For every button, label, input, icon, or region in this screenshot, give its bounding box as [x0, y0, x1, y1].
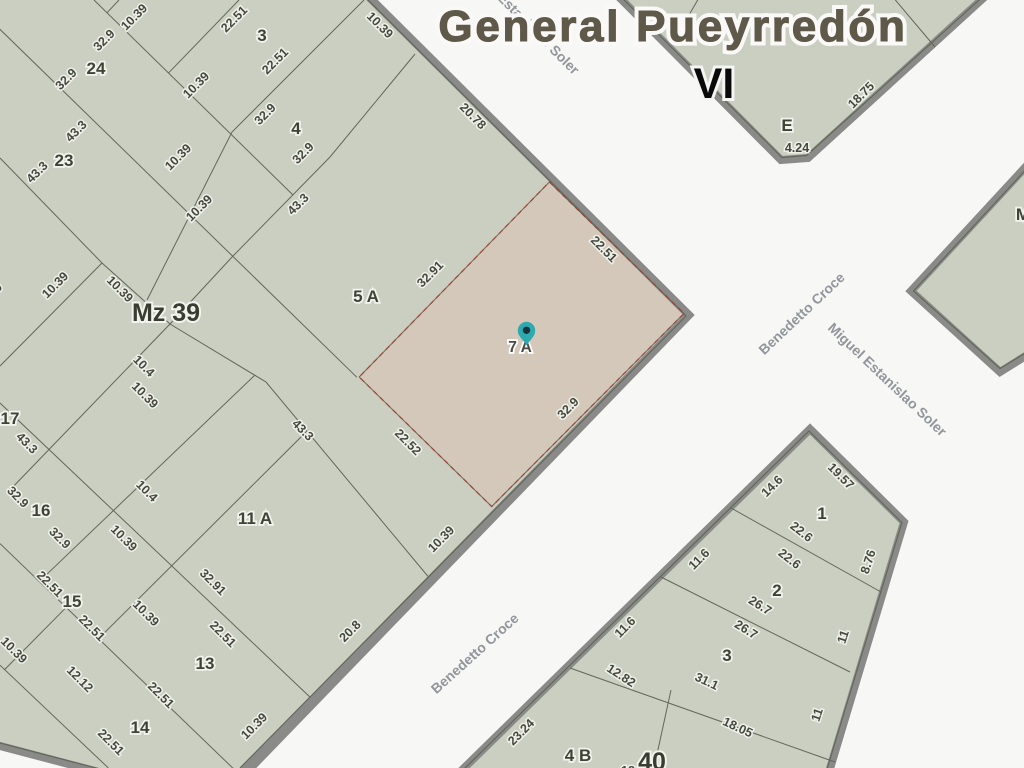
svg-text:M: M: [1016, 205, 1024, 224]
svg-text:E: E: [781, 116, 792, 135]
svg-text:18: 18: [621, 764, 635, 768]
svg-text:15: 15: [63, 592, 82, 611]
svg-text:13: 13: [196, 654, 215, 673]
svg-text:Mz 39: Mz 39: [132, 299, 200, 327]
svg-text:VI: VI: [694, 60, 735, 108]
svg-text:1: 1: [817, 504, 826, 523]
svg-text:4.24: 4.24: [785, 141, 809, 155]
svg-text:4 B: 4 B: [565, 746, 591, 765]
svg-text:14: 14: [131, 718, 150, 737]
svg-text:24: 24: [87, 59, 106, 78]
svg-text:General Pueyrredón: General Pueyrredón: [438, 2, 907, 51]
svg-text:2: 2: [772, 581, 781, 600]
svg-text:23: 23: [55, 151, 74, 170]
svg-text:16: 16: [32, 501, 51, 520]
svg-text:11 A: 11 A: [238, 509, 272, 528]
svg-text:3: 3: [722, 646, 731, 665]
svg-text:3: 3: [257, 26, 266, 45]
svg-text:40: 40: [638, 748, 666, 768]
svg-text:5 A: 5 A: [353, 287, 379, 306]
svg-text:4: 4: [291, 119, 301, 138]
svg-text:17: 17: [1, 409, 20, 428]
